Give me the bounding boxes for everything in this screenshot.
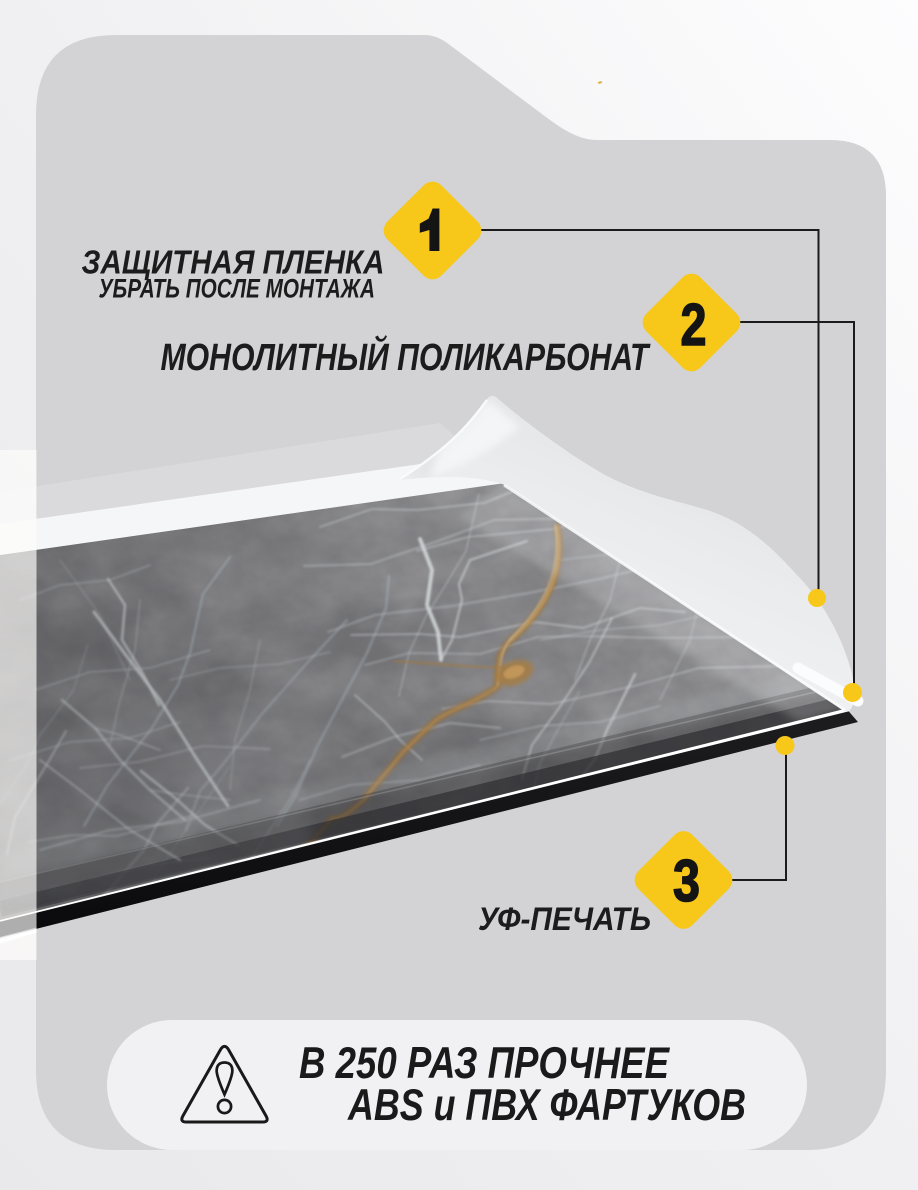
svg-text:2: 2 (681, 291, 707, 358)
svg-text:ABS и ПВХ ФАРТУКОВ: ABS и ПВХ ФАРТУКОВ (347, 1081, 746, 1130)
svg-text:МОНОЛИТНЫЙ ПОЛИКАРБОНАТ: МОНОЛИТНЫЙ ПОЛИКАРБОНАТ (161, 336, 651, 378)
svg-text:УФ-ПЕЧАТЬ: УФ-ПЕЧАТЬ (478, 901, 651, 937)
svg-text:3: 3 (673, 847, 700, 914)
svg-text:УБРАТЬ ПОСЛЕ МОНТАЖА: УБРАТЬ ПОСЛЕ МОНТАЖА (99, 274, 376, 304)
